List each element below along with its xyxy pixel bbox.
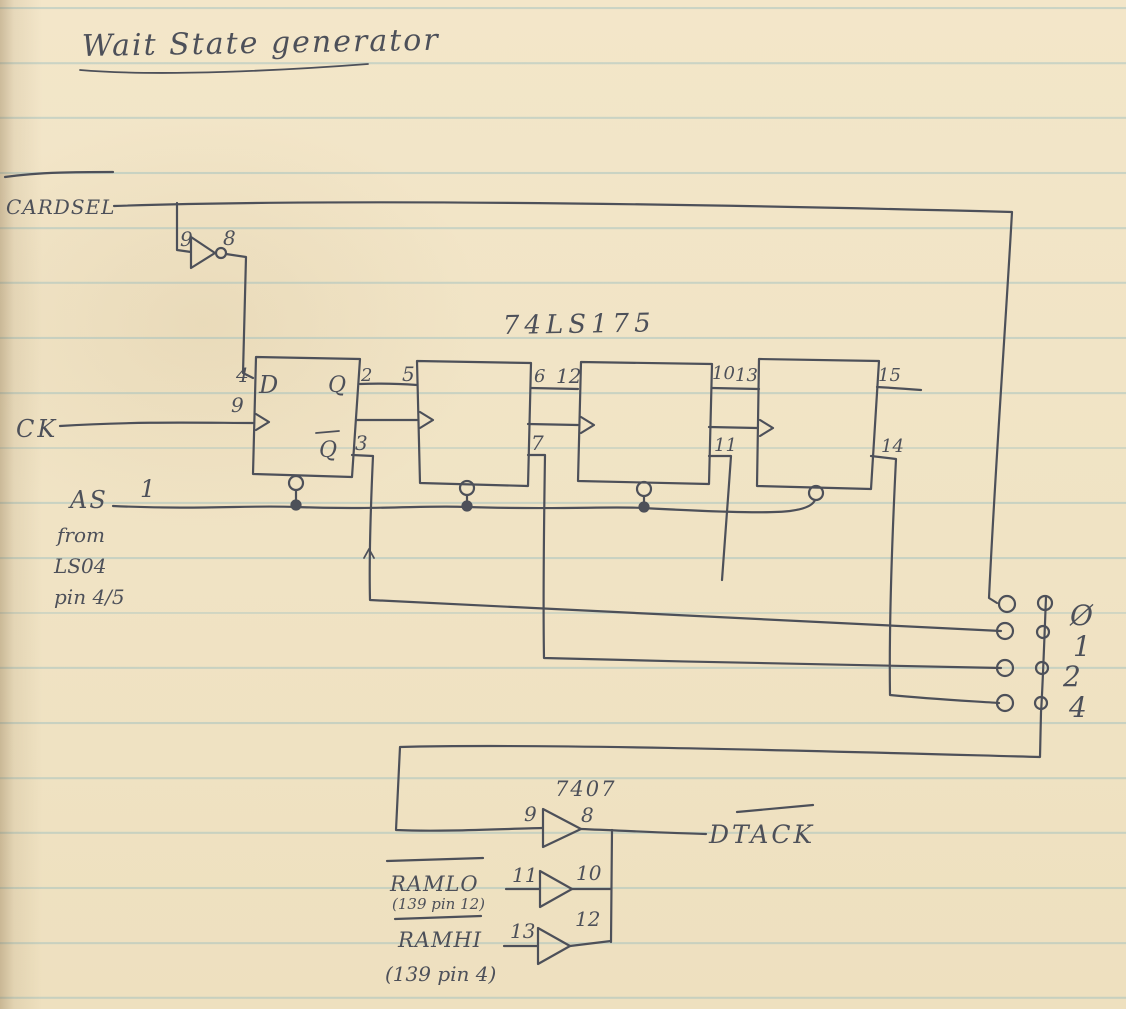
- ff3-junction-dot: [640, 503, 649, 512]
- dtack-overline: [737, 805, 813, 812]
- buffer3-out-pin: 12: [575, 907, 600, 931]
- buffer3-in-pin: 13: [510, 919, 535, 943]
- jumper-pad-left-0: [999, 596, 1015, 612]
- title-underline: [80, 64, 368, 73]
- ff1-clear-bubble: [289, 476, 303, 490]
- ff1-qbar-overbar: [316, 431, 339, 433]
- ck-wire: [60, 423, 253, 426]
- buffer1-in-pin: 9: [524, 802, 537, 826]
- circuit-diagram: Wait State generator CARDSEL 9 8 74LS175…: [0, 0, 1126, 1009]
- notebook-page: Wait State generator CARDSEL 9 8 74LS175…: [0, 0, 1126, 1009]
- jumper-label-0: Ø: [1069, 599, 1094, 632]
- ff3-box: [578, 362, 712, 484]
- as-pin-label: 1: [140, 475, 155, 503]
- jumper-label-2: 2: [1062, 660, 1081, 693]
- ck-label: CK: [16, 415, 58, 443]
- jumper-label-1: 1: [1073, 630, 1091, 663]
- clock-wire-ff2-ff3: [528, 424, 578, 425]
- cardsel-overline: [5, 172, 113, 177]
- qbar1-wire: [352, 455, 1001, 631]
- inverter-out-pin: 8: [223, 226, 236, 250]
- ff4-d-pin: 13: [735, 365, 758, 386]
- inverter-output-wire: [226, 254, 253, 378]
- ff3-d-pin: 12: [556, 364, 581, 388]
- ff4-box: [757, 359, 879, 489]
- ff2-clear-bubble: [460, 481, 474, 495]
- qbar3-deadend-wire: [709, 456, 731, 580]
- ff4-clock-chevron-icon: [760, 420, 773, 436]
- ff1-d-label: D: [258, 371, 278, 399]
- ff3-clock-chevron-icon: [581, 417, 594, 433]
- ff4-q-pin: 15: [878, 365, 901, 386]
- page-title: Wait State generator: [82, 23, 440, 64]
- jumper-label-4: 4: [1068, 691, 1087, 724]
- as-note-line3: pin 4/5: [54, 585, 125, 609]
- q2-to-d3-wire: [531, 388, 578, 389]
- dtack-wire: [581, 829, 706, 834]
- jumper-pad-right-1: [1037, 626, 1049, 638]
- ff1-d-pin: 4: [235, 363, 249, 387]
- dtack-label: DTACK: [708, 820, 815, 849]
- as-label: AS: [68, 486, 108, 514]
- ramhi-label: RAMHI: [397, 928, 482, 952]
- chip-7407-label: 7407: [555, 777, 616, 801]
- clock-wire-ff3-ff4: [709, 427, 757, 428]
- ramhi-note: (139 pin 4): [385, 962, 496, 986]
- buffer-output-bus-wire: [611, 830, 612, 942]
- ff2-d-pin: 5: [402, 362, 415, 386]
- inverter-in-pin: 9: [180, 227, 193, 251]
- q3-to-d4-wire: [712, 388, 759, 389]
- ff1-qbar-pin: 3: [355, 431, 368, 455]
- ff2-qbar-pin: 7: [531, 431, 544, 455]
- ff2-box: [417, 361, 531, 486]
- ff1-q-label: Q: [328, 373, 346, 398]
- ramhi-overline: [395, 916, 481, 919]
- jumper-bus-wire: [396, 597, 1046, 831]
- ramlo-overline: [387, 858, 483, 861]
- buffer2-triangle: [540, 871, 572, 907]
- ff4-qbar-pin: 14: [881, 436, 904, 457]
- cardsel-label: CARDSEL: [6, 195, 115, 219]
- ff2-junction-dot: [463, 502, 472, 511]
- buffer3-output-wire: [570, 941, 611, 946]
- buffer1-triangle: [543, 809, 581, 847]
- ff1-junction-dot: [292, 501, 301, 510]
- as-note-line2: LS04: [53, 554, 106, 578]
- ff1-q-pin: 2: [360, 365, 372, 386]
- ff3-clear-bubble: [637, 482, 651, 496]
- ff1-clk-pin: 9: [231, 393, 244, 417]
- buffer2-in-pin: 11: [512, 863, 537, 887]
- inverter-triangle: [191, 237, 215, 268]
- buffer3-triangle: [538, 928, 570, 964]
- q4-stub-wire: [877, 387, 921, 390]
- ff3-qbar-pin: 11: [714, 435, 737, 456]
- ramlo-note: (139 pin 12): [392, 895, 485, 913]
- ff1-qbar-label: Q: [319, 438, 337, 463]
- buffer2-out-pin: 10: [576, 861, 602, 885]
- buffer1-out-pin: 8: [581, 803, 594, 827]
- as-note-line1: from: [55, 523, 105, 547]
- chip-74ls175-label: 74LS175: [503, 308, 656, 341]
- ff3-q-pin: 10: [712, 363, 735, 384]
- ff2-clock-chevron-icon: [420, 412, 433, 428]
- ramlo-label: RAMLO: [389, 872, 479, 896]
- ff1-clock-chevron-icon: [256, 414, 269, 430]
- ff2-q-pin: 6: [534, 366, 545, 387]
